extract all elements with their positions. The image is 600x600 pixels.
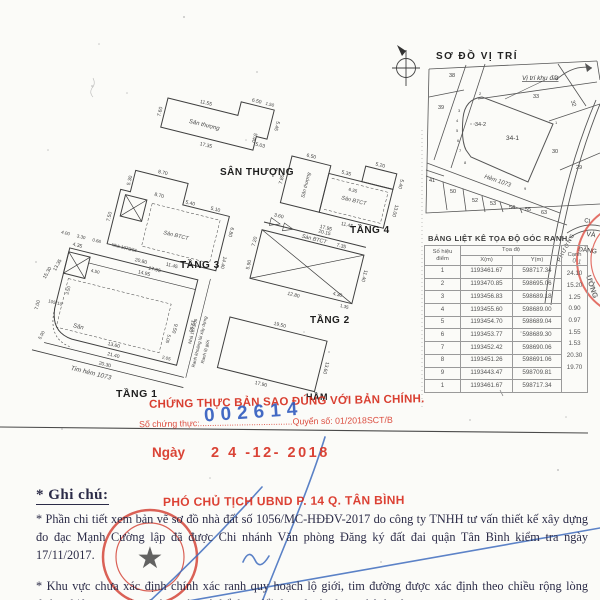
parcel-number: 34-2 (475, 122, 486, 128)
edge-length: 0.97 (561, 317, 588, 324)
edge-length: 20.30 (561, 352, 588, 359)
dim-label: 5.90 (37, 330, 46, 341)
floor-plan-san-thuong: Sân thượng 11.55 6.50 5.45 1.50 7.60 17.… (152, 76, 285, 165)
dim-label: 12.80 (287, 291, 301, 300)
dim-label: 4.00 (61, 230, 71, 237)
parcel-number: 41 (429, 178, 435, 184)
dim-label: 4.30 (332, 291, 343, 299)
dim-label: 1.35 (339, 303, 349, 310)
dim-label: 5.40 (250, 132, 258, 143)
floor-label-san-thuong: SÂN THƯỢNG (220, 165, 294, 178)
floor-label-tang-2: TẦNG 2 (310, 313, 350, 326)
notes-heading: * Ghi chú: (36, 487, 109, 505)
dim-label: 7.00 (34, 299, 42, 310)
dim-label: 5.05 (165, 334, 172, 344)
corner-point: 8 (464, 160, 467, 165)
corner-point: 7 (459, 148, 462, 153)
dim-label: 2.05 (162, 355, 172, 362)
corner-point: 5 (456, 128, 459, 133)
certification-date: Ngày2 4 -12- 2018 (152, 445, 330, 461)
street-label: Hẻm 1073 (483, 173, 512, 189)
house-number-label: Nhà 1073/66 (111, 242, 138, 253)
corner-point: 9 (524, 186, 527, 191)
date-label: Ngày (152, 445, 185, 460)
dim-label: 9.50 (170, 323, 178, 334)
parcel-number: 32 (569, 100, 577, 108)
dim-label: 5.10 (210, 206, 221, 214)
dim-label: 3.50 (64, 285, 71, 295)
edge-length: 1.53 (561, 340, 588, 347)
edge-length: 1.55 (561, 329, 588, 336)
dim-label: 14.40 (219, 256, 228, 270)
plan-surface-label: Sàn BTCT (341, 195, 368, 207)
dim-label: 15.30 (42, 266, 53, 280)
dim-label: 17.90 (254, 380, 268, 389)
edge-length: 24.10 (561, 270, 588, 277)
floor-plan-tang-3: Sàn BTCT 8.70 5.30 8.70 5.40 5.10 6.80 7… (96, 160, 244, 290)
col-header-edge: Cạnh (562, 246, 588, 266)
dim-label: 1.50 (265, 101, 275, 108)
north-compass-icon (392, 45, 420, 86)
floor-label-tang-4: TẦNG 4 (350, 223, 390, 236)
dim-label: 13.35 (52, 258, 63, 272)
certify-book-label: Quyển số: 01/2018SCT/B (292, 415, 392, 427)
site-location-label: Vị trí khu đất (522, 74, 560, 82)
parcel-number: 52 (472, 198, 478, 204)
dim-label: 6.80 (226, 227, 234, 238)
edge-length: 15.20 (561, 282, 588, 289)
dim-label: 5.45 (272, 120, 280, 131)
separator-rule (0, 427, 588, 433)
note-paragraph: * Phần chi tiết xem bản vẽ sơ đồ nhà đất… (36, 510, 588, 564)
corner-point: 1 (555, 120, 558, 125)
dim-label: 11.45 (165, 262, 178, 271)
edge-length: 19.70 (561, 364, 588, 371)
parcel-number: 53 (490, 201, 496, 207)
plan-surface-label: Sàn BTCT (163, 230, 190, 242)
plan-surface-label: Sân (72, 323, 84, 332)
dim-label: 17.35 (199, 141, 213, 150)
dim-label: 8.70 (154, 192, 165, 200)
parcel-number: 63 (541, 210, 547, 216)
parcel-number: 55 (525, 207, 531, 213)
date-value: 2 4 -12- 2018 (211, 445, 330, 461)
parcel-number: 39 (438, 105, 444, 111)
plan-surface-label: Sân thượng (300, 172, 312, 199)
parcel-number: 38 (449, 73, 455, 79)
coordinate-table-title: BẢNG LIỆT KÊ TỌA ĐỘ GÓC RANH (424, 233, 590, 245)
floor-label-tang-3: TẦNG 3 (180, 258, 220, 271)
dim-label: 13.00 (390, 204, 399, 218)
diagram-title: SƠ ĐỒ VỊ TRÍ (436, 49, 518, 62)
dim-label: 5.40 (185, 199, 196, 207)
parcel-number-subject: 34-1 (506, 135, 519, 142)
dim-label: 3.60 (273, 212, 284, 220)
dim-label: 7.35 (336, 242, 347, 250)
parcel-number: 30 (552, 149, 558, 155)
dim-label: 5.30 (126, 175, 134, 186)
location-diagram (426, 61, 600, 238)
dim-label: 13.60 (321, 361, 330, 375)
dim-label: 11.40 (360, 269, 369, 282)
certify-number-label: Số chứng thực: (139, 418, 200, 429)
dim-label: 4.50 (90, 268, 100, 275)
parcel-number: 54 (509, 205, 515, 211)
plan-surface-label: Sân thượng (188, 119, 221, 133)
edge-length: 0.90 (561, 305, 588, 312)
floor-plan-tang-1: Sân 4.35 20.80 14.95 4.50 7.00 3.50 13.6… (21, 228, 228, 403)
col-header-coord: Tọa độ (461, 246, 562, 256)
dim-label: 5.40 (396, 178, 404, 189)
notes-section: * Ghi chú: * Phần chi tiết xem bản vẽ sơ… (36, 486, 588, 600)
edge-length: 1.25 (561, 294, 588, 301)
corner-point: 3 (458, 108, 461, 113)
col-header-x: X(m) (461, 256, 513, 266)
parcel-number: 50 (450, 189, 456, 195)
scanned-survey-document: SƠ ĐỒ VỊ TRÍ Vị trí khu đất 38 39 33 32 … (0, 0, 600, 600)
corner-point: 4 (456, 118, 459, 123)
col-header-y: Y(m) (513, 256, 562, 266)
dim-label: 6.35 (348, 187, 358, 194)
coordinate-table-section: BẢNG LIỆT KÊ TỌA ĐỘ GÓC RANH Số hiệuđiểm… (424, 233, 590, 393)
col-header-point: Số hiệuđiểm (425, 246, 461, 266)
parcel-number: 33 (533, 94, 539, 100)
dim-label: 0.66 (92, 237, 102, 244)
corner-point: 2 (479, 91, 482, 96)
note-paragraph: * Khu vực chưa xác định chính xác ranh q… (36, 577, 588, 600)
dim-label: 3.30 (76, 233, 86, 240)
